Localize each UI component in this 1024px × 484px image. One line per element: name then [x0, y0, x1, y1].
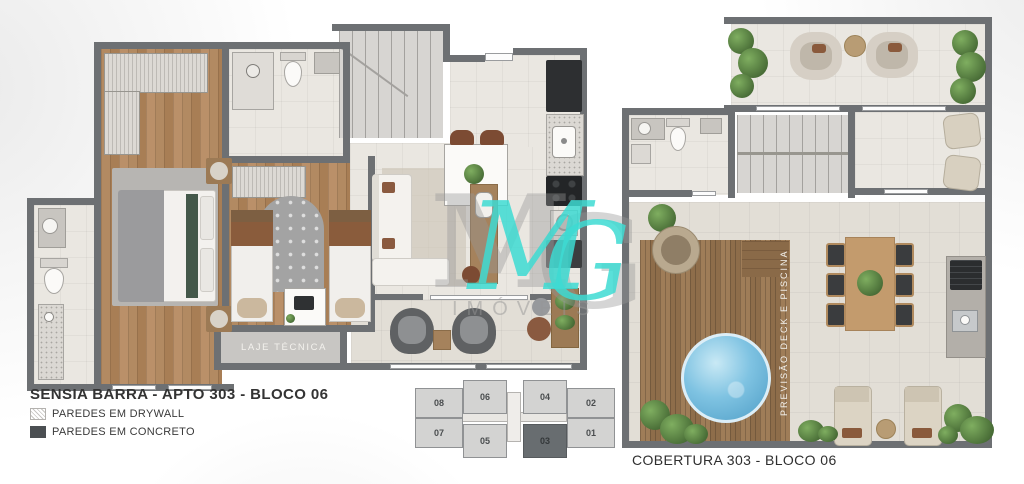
unit-number: 07 [434, 428, 444, 438]
sun-lounger-headrest [835, 387, 869, 402]
outdoor-chair [826, 273, 846, 297]
building-key-plan: 08 07 06 05 04 03 02 01 [413, 374, 613, 462]
daybed-cushion [661, 235, 691, 265]
plant [684, 424, 708, 444]
key-plan-unit-07: 07 [415, 418, 463, 448]
key-plan-unit-08: 08 [415, 388, 463, 418]
bbq-sink-bowl [960, 315, 970, 325]
outdoor-chair [826, 243, 846, 267]
wall [985, 17, 992, 448]
unit-number: 02 [586, 398, 596, 408]
round-side-table [844, 35, 866, 57]
key-plan-unit-02: 02 [567, 388, 615, 418]
lounger-towel [912, 428, 932, 438]
wall [622, 108, 629, 448]
plant [730, 74, 754, 98]
outdoor-chair [894, 273, 914, 297]
lounge-throw [888, 43, 902, 52]
unit-number: 05 [480, 436, 490, 446]
armchair-beige [942, 154, 982, 192]
key-plan-unit-04: 04 [523, 380, 567, 414]
sink [638, 122, 651, 135]
key-plan-core [507, 392, 521, 442]
outdoor-chair [826, 303, 846, 327]
plant [938, 426, 958, 444]
deck-label: PREVISÃO DECK E PISCINA [779, 238, 799, 428]
terrace-sliding-door [862, 106, 946, 111]
terrace-sliding-door [756, 106, 840, 111]
legend-concrete-swatch [30, 426, 46, 438]
legend-drywall-swatch [30, 408, 46, 420]
unit-number: 01 [586, 428, 596, 438]
outdoor-chair [894, 243, 914, 267]
washbasin [700, 118, 722, 134]
wall [848, 108, 855, 198]
rooftop-title: COBERTURA 303 - BLOCO 06 [632, 452, 837, 468]
floorplan-poster: LAJE TÉCNICA M G M G IMÓVEIS [0, 0, 1024, 484]
legend: PAREDES EM DRYWALL PAREDES EM CONCRETO [30, 408, 250, 444]
wall [622, 108, 730, 115]
plant [950, 78, 976, 104]
unit-number: 03 [540, 436, 550, 446]
wall [724, 17, 992, 24]
apartment-title: SENSIA BARRA - APTO 303 - BLOCO 06 [30, 386, 328, 403]
round-side-table [876, 419, 896, 439]
laundry-tub [631, 144, 651, 164]
lounge-throw [812, 44, 826, 53]
table-plant [857, 270, 883, 296]
key-plan-unit-05: 05 [463, 424, 507, 458]
outdoor-chair [894, 303, 914, 327]
unit-number: 08 [434, 398, 444, 408]
legend-concrete-label: PAREDES EM CONCRETO [52, 426, 195, 438]
armchair-beige [942, 112, 982, 150]
wall [728, 108, 735, 198]
door [692, 191, 716, 196]
key-plan-unit-03-highlighted: 03 [523, 424, 567, 458]
plant [960, 416, 994, 444]
grill [950, 260, 982, 290]
key-plan-unit-01: 01 [567, 418, 615, 448]
wall [622, 190, 692, 197]
lounger-towel [842, 428, 862, 438]
sun-lounger-headrest [905, 387, 939, 402]
key-plan-unit-06: 06 [463, 380, 507, 414]
plant [818, 426, 838, 442]
unit-number: 04 [540, 392, 550, 402]
door [884, 189, 928, 194]
legend-drywall-label: PAREDES EM DRYWALL [52, 408, 184, 420]
pool [681, 333, 771, 423]
rooftop-staircase-landing-line [737, 152, 848, 155]
unit-number: 06 [480, 392, 490, 402]
toilet-tank [666, 118, 690, 127]
